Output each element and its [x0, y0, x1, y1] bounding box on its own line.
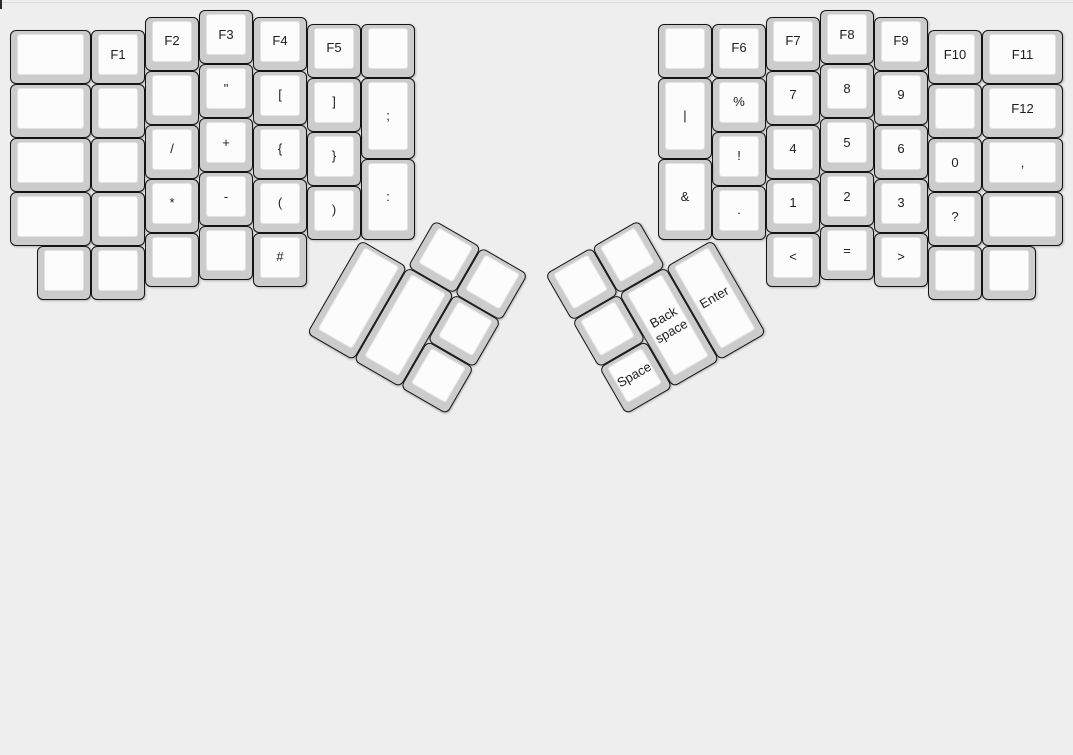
key-label: Space — [614, 359, 654, 391]
keycap-top — [600, 227, 655, 283]
key-label: Back space — [645, 302, 691, 346]
keyboard: F1F2F3F4F5"[];/+{}:*-()#F6F7F8F9F10F11|%… — [10, 10, 1073, 424]
window-edge-artifact — [0, 0, 2, 9]
key-label: Enter — [697, 283, 732, 312]
page: { "page": { "width": 1073, "height": 424… — [0, 0, 1073, 424]
